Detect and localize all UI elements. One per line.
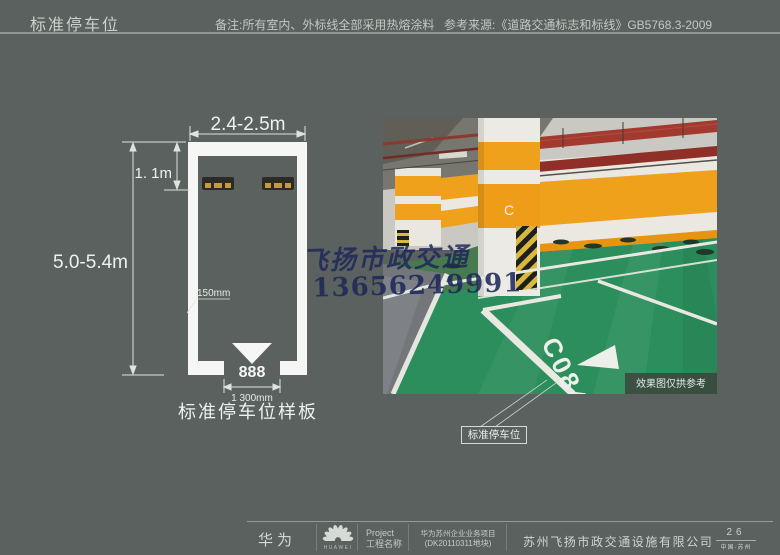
width-dimension-label: 2.4-2.5m [211, 114, 286, 135]
wheel-stop-right [262, 177, 294, 190]
footer-divider [316, 524, 317, 551]
footer-divider [408, 524, 409, 551]
setback-dimension-label: 1. 1m [134, 165, 172, 182]
left-pillar [395, 168, 441, 246]
disclaimer-badge: 效果图仅拱参考 [625, 373, 717, 394]
page-number-underline [716, 540, 756, 541]
project-label: Project 工程名称 [366, 528, 402, 550]
entry-arrow-triangle [232, 343, 272, 364]
company-name: 苏州飞扬市政交通设施有限公司 [523, 533, 713, 550]
pillar-letter: C [504, 202, 514, 218]
project-name-line2: (DK20110311地块) [412, 539, 504, 549]
disclaimer-text: 效果图仅拱参考 [636, 377, 706, 390]
page-location: 中国·苏州 [714, 542, 758, 551]
wheel-stop-left [202, 177, 234, 190]
callout-label: 标准停车位 [461, 426, 527, 444]
huawei-logo-text: HUAWEI [321, 545, 355, 551]
huawei-flower-icon [321, 523, 355, 541]
parking-outline [188, 142, 307, 375]
space-number-label: 888 [239, 364, 266, 381]
project-name-line1: 华为苏州企业业务项目 [412, 529, 504, 539]
project-label-en: Project [366, 528, 402, 539]
footer-divider [506, 524, 507, 551]
line-width-label: 150mm [197, 288, 230, 299]
page-number: 26 [714, 527, 758, 538]
parking-photo: C C084 [383, 118, 717, 394]
hazard-stripes [516, 226, 537, 290]
mid-wall [441, 174, 478, 228]
project-label-zh: 工程名称 [366, 539, 402, 550]
footer-separator [247, 521, 773, 522]
footer-divider [357, 524, 358, 551]
huawei-logo: HUAWEI [321, 523, 355, 551]
project-name: 华为苏州企业业务项目 (DK20110311地块) [412, 529, 504, 549]
page-number-block: 26 中国·苏州 [714, 527, 758, 551]
brand-text: 华为 [258, 529, 296, 550]
diagram-caption: 标准停车位样板 [178, 402, 318, 422]
length-dimension-label: 5.0-5.4m [53, 252, 128, 273]
